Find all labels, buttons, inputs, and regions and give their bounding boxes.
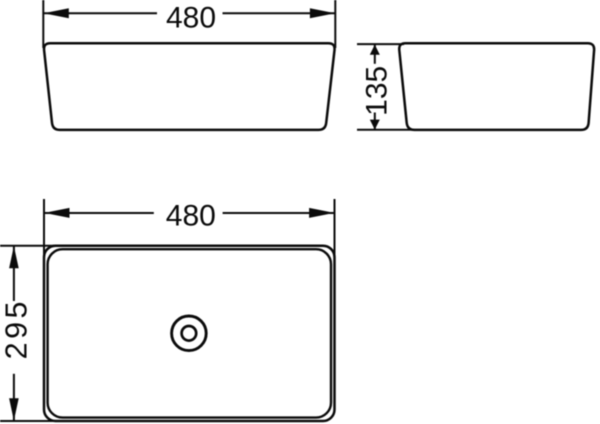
svg-text:480: 480 — [166, 200, 216, 233]
svg-text:480: 480 — [166, 2, 216, 35]
svg-text:135: 135 — [361, 66, 394, 116]
svg-text:295: 295 — [0, 298, 33, 359]
